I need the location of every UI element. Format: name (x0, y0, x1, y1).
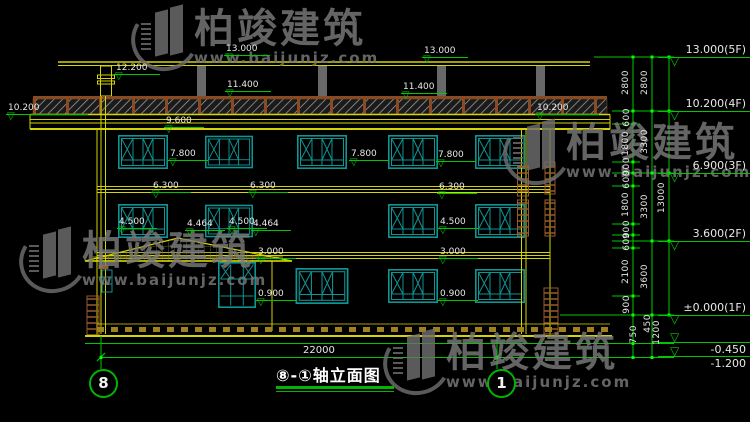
dimension-label: 1200 (652, 320, 662, 345)
level-marker: -1.200▽ (658, 356, 750, 370)
elevation-marker: 9.600▽ (164, 116, 204, 128)
watermark-logo-icon (390, 328, 444, 390)
cad-elevation-canvas: 13.000▽ 13.000▽ 12.200▽ 11.400▽ 11.400▽ … (0, 0, 750, 422)
elevation-marker: 3.000▽ (256, 247, 296, 259)
elevation-marker: 13.000▽ (224, 44, 270, 56)
watermark: 柏竣建筑 www.baijunjz.com (138, 4, 379, 67)
elevation-marker: 13.000▽ (422, 46, 468, 58)
watermark-url: www.baijunjz.com (446, 374, 631, 391)
elevation-marker: 7.800▽ (168, 149, 208, 161)
elevation-marker: 11.400▽ (225, 80, 271, 92)
elevation-triangle-icon: ▽ (115, 71, 123, 83)
elevation-marker: 12.200▽ (114, 63, 160, 75)
elevation-marker: 6.300▽ (151, 181, 191, 193)
elevation-triangle-icon: ▽ (350, 157, 358, 169)
level-marker: 10.200(4F)▽ (658, 98, 750, 112)
elevation-marker: 7.800▽ (349, 149, 389, 161)
elevation-triangle-icon: ▽ (437, 158, 445, 170)
elevation-triangle-icon: ▽ (438, 190, 446, 202)
elevation-triangle-icon: ▽ (226, 88, 234, 100)
dimension-label: 2800 (621, 70, 631, 95)
elevation-triangle-icon: ▽ (536, 111, 544, 123)
elevation-marker: 10.200▽ (6, 103, 88, 115)
elevation-triangle-icon: ▽ (169, 157, 177, 169)
dimension-label: 1800 (621, 192, 631, 217)
title-underline (276, 391, 394, 392)
elevation-triangle-icon: ▽ (439, 297, 447, 309)
watermark-logo-icon (510, 118, 564, 180)
parapet-railing (33, 96, 607, 114)
elevation-marker: 7.800▽ (436, 150, 476, 162)
elevation-triangle-icon: ▽ (228, 225, 236, 237)
elevation-marker: 0.900▽ (438, 289, 478, 301)
elevation-triangle-icon: ▽ (670, 313, 679, 325)
elevation-marker: 4.464▽ (251, 219, 291, 231)
elevation-triangle-icon: ▽ (439, 255, 447, 267)
elevation-marker: 6.300▽ (437, 182, 477, 194)
elevation-marker: 10.200▽ (535, 103, 599, 115)
elevation-marker: 4.464▽ (185, 219, 225, 231)
dimension-label: 750 (629, 325, 639, 344)
elevation-marker: 3.000▽ (438, 247, 478, 259)
level-marker: 3.600(2F)▽ (658, 228, 750, 242)
elevation-marker: 0.900▽ (256, 289, 296, 301)
elevation-marker: 6.300▽ (248, 181, 288, 193)
dimension-label: 3600 (640, 264, 650, 289)
dimension-label: 600 (622, 108, 632, 127)
axis-bubble-8: 8 (89, 369, 118, 398)
elevation-triangle-icon: ▽ (257, 255, 265, 267)
title-underline (276, 386, 394, 389)
watermark-url: www.baijunjz.com (194, 50, 379, 67)
elevation-triangle-icon: ▽ (670, 55, 679, 67)
elevation-triangle-icon: ▽ (7, 111, 15, 123)
elevation-triangle-icon: ▽ (670, 109, 679, 121)
elevation-triangle-icon: ▽ (670, 239, 679, 251)
elevation-triangle-icon: ▽ (249, 189, 257, 201)
dimension-label: 13000 (657, 182, 667, 213)
overall-width-dim: 22000 (303, 345, 335, 356)
elevation-triangle-icon: ▽ (670, 331, 679, 343)
elevation-triangle-icon: ▽ (186, 227, 194, 239)
level-marker: 6.900(3F)▽ (658, 160, 750, 174)
dimension-label: 900 (622, 295, 632, 314)
elevation-triangle-icon: ▽ (423, 54, 431, 66)
elevation-triangle-icon: ▽ (152, 189, 160, 201)
elevation-marker: 4.500▽ (117, 217, 157, 229)
drawing-title: ⑧-①轴立面图 (276, 362, 381, 386)
elevation-triangle-icon: ▽ (225, 52, 233, 64)
dimension-label: 600 (622, 170, 632, 189)
watermark-brand: 柏竣建筑 (82, 230, 267, 272)
dimension-label: 3300 (640, 194, 650, 219)
watermark-brand: 柏竣建筑 (446, 332, 631, 374)
level-marker: ±0.000(1F)▽ (658, 302, 750, 316)
dimension-label: 600 (622, 232, 632, 251)
watermark-logo-icon (26, 226, 80, 288)
watermark-brand: 柏竣建筑 (566, 122, 750, 164)
axis-bubble-1: 1 (487, 369, 516, 398)
dimension-label: 1800 (621, 131, 631, 156)
watermark-brand: 柏竣建筑 (194, 8, 379, 50)
watermark-url: www.baijunjz.com (82, 272, 267, 289)
level-marker: 13.000(5F)▽ (658, 44, 750, 58)
elevation-marker: 11.400▽ (401, 82, 447, 94)
dimension-label: 2100 (621, 259, 631, 284)
elevation-triangle-icon: ▽ (118, 225, 126, 237)
elevation-triangle-icon: ▽ (252, 227, 260, 239)
elevation-marker: 4.500▽ (438, 217, 478, 229)
elevation-triangle-icon: ▽ (439, 225, 447, 237)
watermark-logo-icon (138, 4, 192, 66)
dimension-label: 2800 (640, 70, 650, 95)
dimension-label: 3300 (640, 129, 650, 154)
elevation-triangle-icon: ▽ (257, 297, 265, 309)
elevation-triangle-icon: ▽ (165, 124, 173, 136)
elevation-triangle-icon: ▽ (402, 90, 410, 102)
elevation-triangle-icon: ▽ (670, 171, 679, 183)
elevation-triangle-icon: ▽ (670, 345, 679, 357)
